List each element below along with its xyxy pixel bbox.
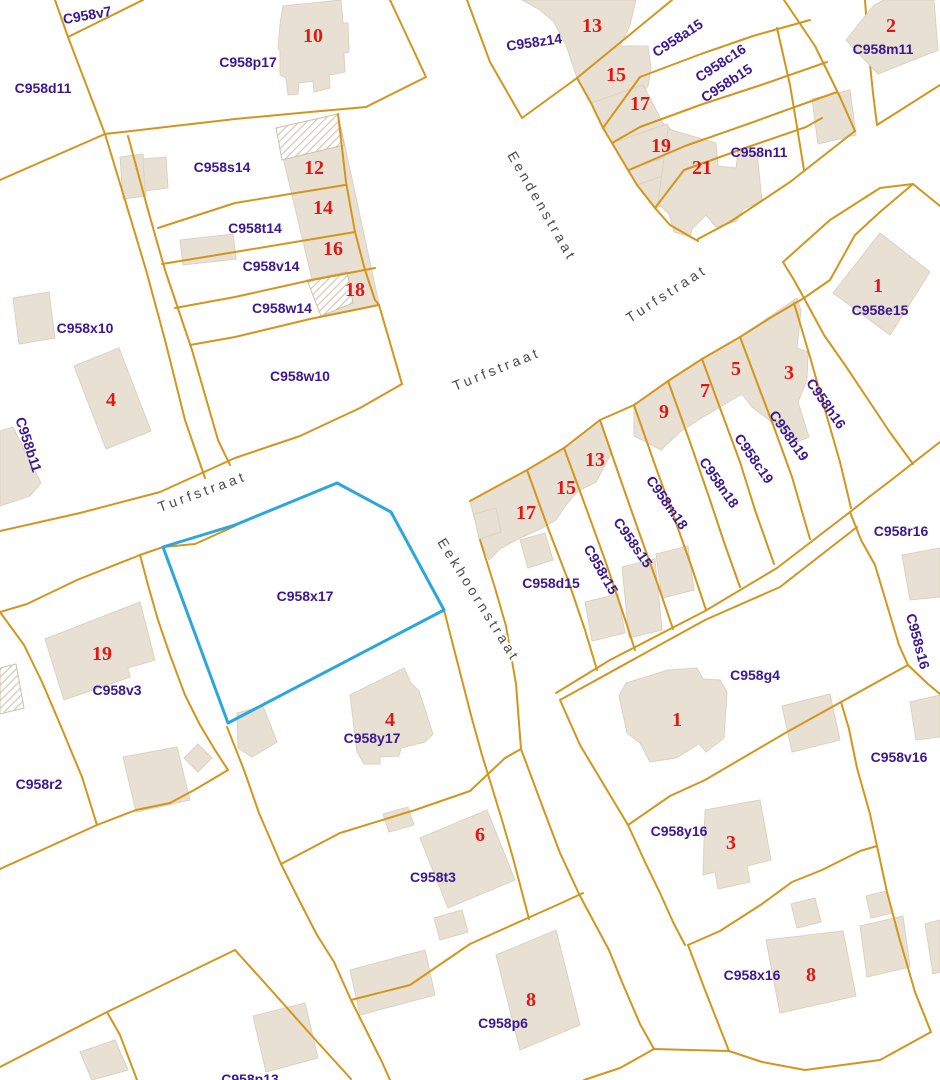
- svg-text:C958x16: C958x16: [724, 967, 781, 983]
- svg-text:C958e15: C958e15: [852, 302, 909, 318]
- svg-text:18: 18: [345, 279, 365, 301]
- svg-text:13: 13: [585, 449, 605, 471]
- svg-text:17: 17: [630, 93, 650, 115]
- svg-text:C958v3: C958v3: [92, 682, 141, 698]
- svg-text:21: 21: [692, 157, 712, 179]
- svg-text:15: 15: [606, 64, 626, 86]
- svg-text:C958v14: C958v14: [243, 258, 300, 274]
- svg-text:1: 1: [672, 709, 682, 731]
- svg-text:C958d15: C958d15: [522, 575, 580, 591]
- svg-text:C958r2: C958r2: [16, 776, 63, 792]
- svg-text:7: 7: [700, 380, 710, 402]
- svg-text:C958w10: C958w10: [270, 368, 330, 384]
- svg-text:C958t3: C958t3: [410, 869, 456, 885]
- svg-text:19: 19: [92, 643, 112, 665]
- svg-text:8: 8: [806, 964, 816, 986]
- svg-text:C958m11: C958m11: [853, 41, 914, 57]
- svg-text:C958p6: C958p6: [478, 1015, 528, 1031]
- svg-text:C958s14: C958s14: [194, 159, 251, 175]
- svg-text:C958n11: C958n11: [731, 144, 788, 160]
- svg-text:C958v16: C958v16: [871, 749, 928, 765]
- svg-text:8: 8: [526, 989, 536, 1011]
- svg-text:9: 9: [659, 401, 669, 423]
- svg-text:15: 15: [556, 477, 576, 499]
- svg-text:C958p17: C958p17: [219, 54, 277, 70]
- svg-text:C958x10: C958x10: [57, 320, 114, 336]
- svg-text:C958x17: C958x17: [277, 588, 334, 604]
- svg-text:C958y17: C958y17: [344, 730, 401, 746]
- svg-text:2: 2: [886, 15, 896, 37]
- svg-text:14: 14: [313, 197, 333, 219]
- svg-text:6: 6: [475, 824, 485, 846]
- svg-text:3: 3: [784, 362, 794, 384]
- svg-text:C958r16: C958r16: [874, 523, 929, 539]
- svg-text:C958g4: C958g4: [730, 667, 780, 683]
- svg-text:C958w14: C958w14: [252, 300, 312, 316]
- svg-text:C958t14: C958t14: [228, 220, 282, 236]
- svg-text:C958d11: C958d11: [15, 80, 72, 96]
- svg-text:1: 1: [873, 275, 883, 297]
- svg-text:C958p13: C958p13: [221, 1071, 279, 1080]
- svg-text:13: 13: [582, 15, 602, 37]
- svg-text:5: 5: [731, 358, 741, 380]
- svg-text:C958y16: C958y16: [651, 823, 708, 839]
- svg-text:19: 19: [651, 135, 671, 157]
- svg-text:17: 17: [516, 502, 536, 524]
- svg-text:12: 12: [304, 157, 324, 179]
- svg-text:10: 10: [303, 25, 323, 47]
- svg-text:3: 3: [726, 832, 736, 854]
- svg-text:4: 4: [106, 389, 116, 411]
- svg-text:4: 4: [385, 709, 395, 731]
- svg-text:16: 16: [323, 238, 343, 260]
